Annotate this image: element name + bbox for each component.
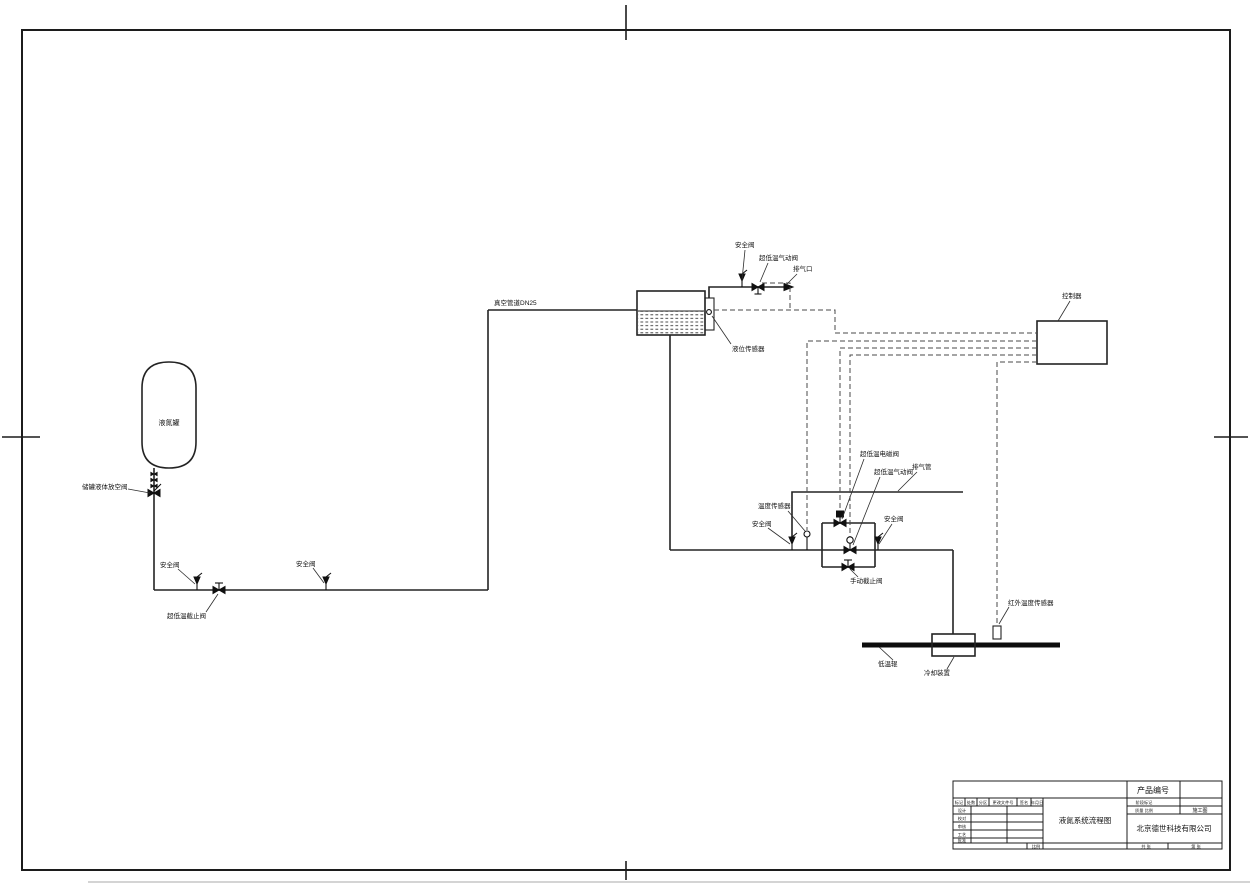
signal-temp-sensor — [807, 341, 1037, 530]
stage-label: 阶段标记 — [1136, 799, 1154, 806]
safety-valve-symbol-2 — [323, 573, 331, 590]
label-ir-temp-sensor: 红外温度传感器 — [1008, 598, 1054, 607]
level-sensor-tap — [707, 310, 712, 315]
field-proof: 校对 — [958, 815, 966, 822]
weight-scale-label: 质量 比例 — [1135, 807, 1153, 814]
cryo-pneumatic-vent-valve-symbol — [752, 284, 764, 295]
label-cryo-stop-valve: 超低温截止阀 — [167, 611, 206, 620]
drawing-frame — [2, 5, 1250, 882]
signal-pneumatic-valve — [850, 355, 1037, 537]
field-change-doc: 更改文件号 — [993, 799, 1014, 806]
temperature-sensor-symbol — [804, 531, 810, 537]
safety-valve-symbol-5 — [875, 533, 883, 550]
label-vacuum-pipe: 真空管道DN25 — [494, 298, 537, 307]
leader-lines — [128, 250, 1070, 669]
product-number-label: 产品编号 — [1137, 785, 1169, 795]
cooling-section — [862, 626, 1060, 656]
label-manual-stop-valve: 手动截止阀 — [850, 576, 883, 585]
pipe-exhaust-line — [792, 492, 963, 541]
cryo-stop-valve-symbol — [213, 583, 225, 594]
label-vent-pipe: 排气管 — [912, 462, 932, 471]
tank-label: 液氮罐 — [159, 418, 180, 427]
field-process: 工艺 — [958, 832, 966, 837]
title-block: 产品编号 液氮系统流程图 北京德世科技有限公司 施工图 阶段标记 质量 比例 标… — [953, 781, 1222, 850]
label-safety-valve-5: 安全阀 — [884, 514, 904, 523]
cryo-pneumatic-valve-symbol — [844, 537, 856, 554]
signal-solenoid-valve — [840, 348, 1037, 513]
ln2-tank-symbol: 液氮罐 — [142, 362, 196, 468]
safety-valve-symbol-1 — [194, 573, 202, 590]
cad-drawing-canvas: 液氮罐 — [0, 0, 1250, 885]
safety-valve-symbol-4 — [789, 533, 797, 550]
company-name: 北京德世科技有限公司 — [1137, 823, 1212, 833]
field-date: 年月日 — [1031, 799, 1044, 806]
field-audit: 审核 — [958, 823, 967, 830]
pipe-vent-line — [709, 287, 784, 298]
vessel-liquid-hatch — [638, 311, 704, 334]
label-safety-valve-1: 安全阀 — [160, 560, 180, 569]
label-safety-valve-3: 安全阀 — [735, 240, 755, 249]
label-tank-outlet-valve: 储罐液体放空阀 — [82, 482, 128, 491]
label-safety-valve-2: 安全阀 — [296, 559, 316, 568]
label-temp-sensor: 温度传感器 — [758, 501, 791, 510]
drawing-title: 液氮系统流程图 — [1059, 815, 1112, 825]
manual-stop-valve-symbol — [842, 560, 854, 571]
field-scale: 比例 — [1032, 843, 1040, 850]
process-pipes — [154, 284, 963, 635]
label-cryo-pneumatic-valve: 超低温气动阀 — [874, 467, 913, 476]
field-sheet-no: 第 张 — [1191, 843, 1201, 850]
label-controller: 控制器 — [1062, 291, 1082, 300]
field-mark: 标记 — [955, 799, 964, 806]
signal-level-sensor — [714, 310, 1037, 333]
field-sign: 签名 — [1020, 799, 1028, 806]
phase-separator-vessel — [637, 291, 714, 335]
ir-sensor-symbol — [993, 626, 1001, 639]
field-zone: 分区 — [979, 799, 987, 806]
signal-ir-sensor — [997, 362, 1037, 626]
component-labels: 储罐液体放空阀 安全阀 超低温截止阀 安全阀 真空管道DN25 液位传感器 安全… — [82, 240, 1082, 677]
label-vent-port: 排气口 — [793, 264, 813, 273]
field-count: 处数 — [967, 799, 976, 806]
pid-diagram: 液氮罐 — [0, 0, 1250, 885]
field-approve: 批准 — [958, 837, 966, 844]
vent-arrow-icon — [784, 284, 793, 291]
label-safety-valve-4: 安全阀 — [752, 519, 772, 528]
field-sheet-total: 共 张 — [1141, 843, 1151, 850]
controller-box — [1037, 321, 1107, 364]
label-cryo-pneumatic-valve-vent: 超低温气动阀 — [759, 253, 798, 262]
label-cooling-device: 冷却装置 — [924, 668, 951, 677]
label-cryo-solenoid-valve: 超低温电磁阀 — [860, 449, 899, 458]
stage-value: 施工图 — [1192, 807, 1207, 814]
field-design: 设计 — [958, 807, 966, 814]
label-cryo-roller: 低温辊 — [878, 659, 898, 668]
label-level-sensor: 液位传感器 — [732, 344, 765, 353]
